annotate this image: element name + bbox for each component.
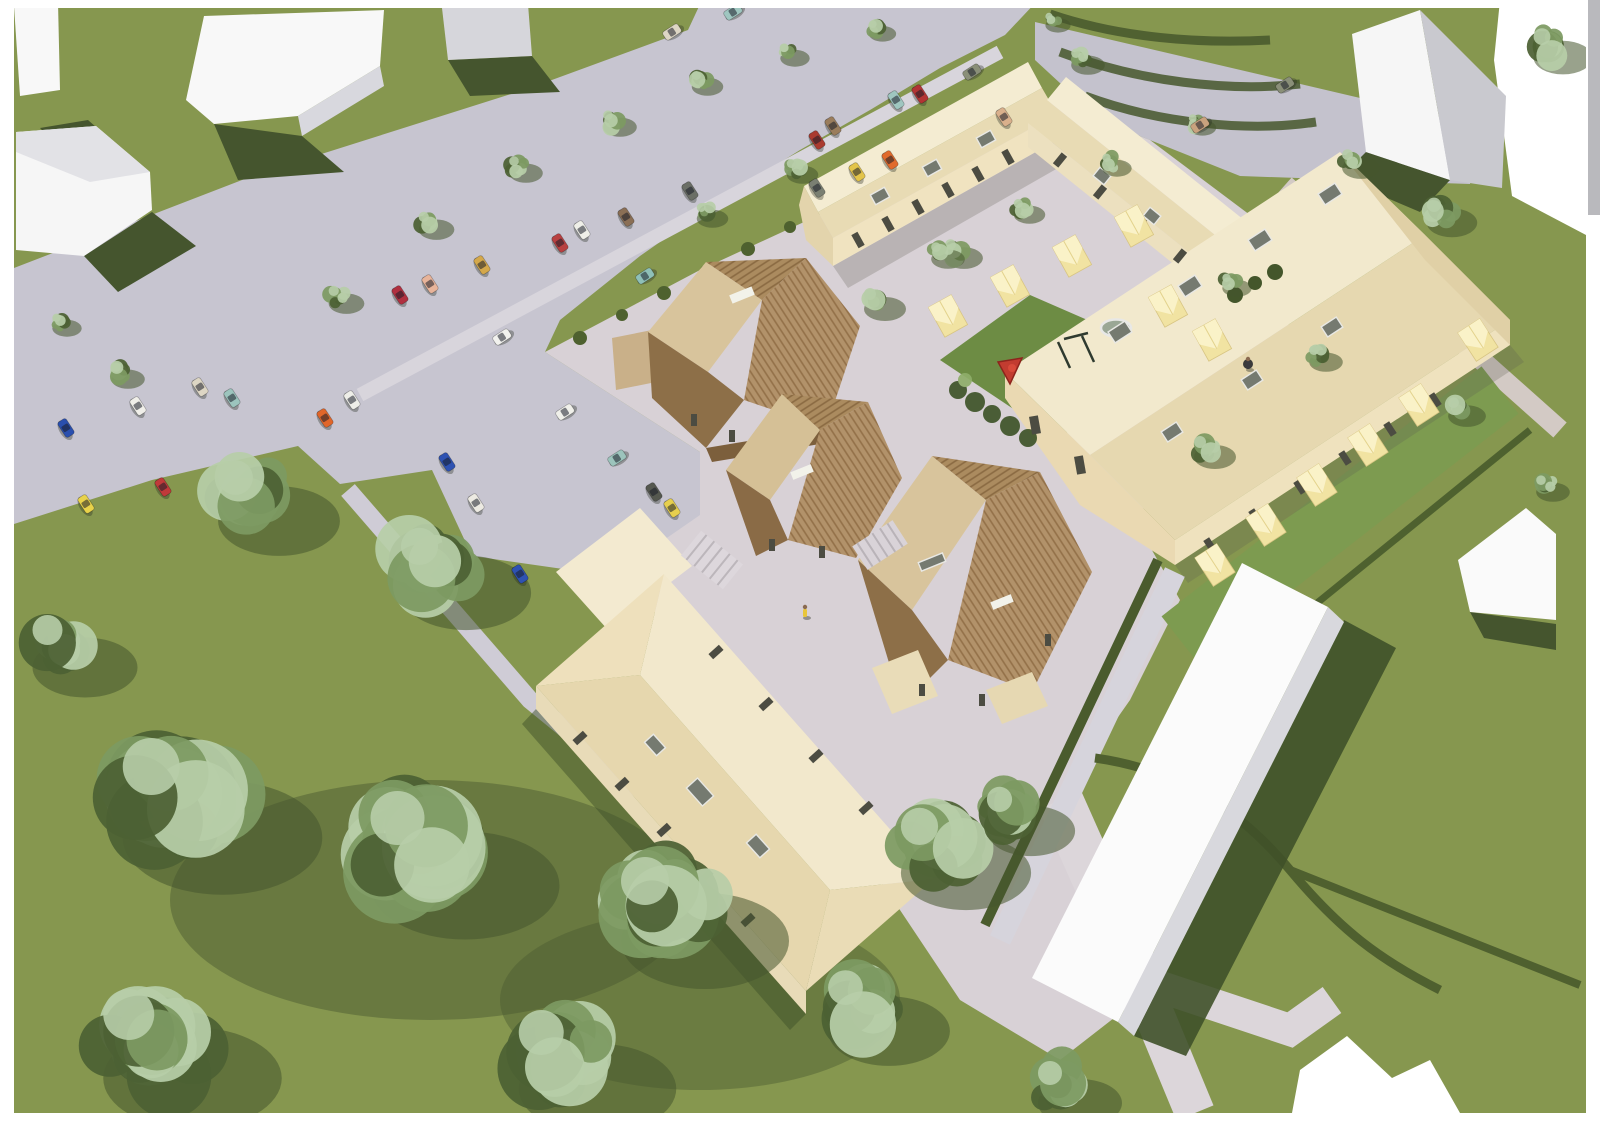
- window: [691, 414, 697, 426]
- window: [979, 694, 985, 706]
- scanned-rendering-page: [0, 0, 1600, 1132]
- page-margin-left: [0, 0, 14, 1132]
- window: [1045, 634, 1051, 646]
- page-margin-bottom: [0, 1113, 1600, 1132]
- page-margin-top: [0, 0, 1600, 8]
- climbing-frame-top: [1008, 364, 1016, 372]
- window: [819, 546, 825, 558]
- window: [919, 684, 925, 696]
- scan-edge-strip: [1588, 0, 1600, 215]
- window: [769, 539, 775, 551]
- aerial-rendering: [0, 0, 1600, 1132]
- window: [729, 430, 735, 442]
